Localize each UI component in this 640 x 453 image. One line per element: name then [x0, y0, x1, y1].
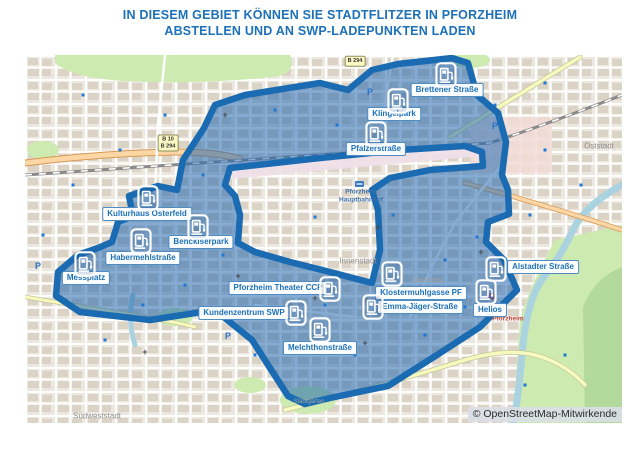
map-dot	[544, 82, 547, 85]
station-label: Alstadter Straße	[507, 260, 579, 274]
map-dot	[42, 234, 45, 237]
ev-charger-icon	[309, 317, 331, 343]
map-dot	[254, 354, 257, 357]
map-dot	[119, 149, 122, 152]
map-dot	[104, 339, 107, 342]
map-dot	[222, 254, 225, 257]
map-dot	[184, 284, 187, 287]
ev-charger-icon	[435, 62, 457, 88]
map-dot	[82, 94, 85, 97]
map-dot	[392, 214, 395, 217]
map-dot	[564, 354, 567, 357]
map-dot	[529, 214, 532, 217]
title-line-1: IN DIESEM GEBIET KÖNNEN SIE STADTFLITZER…	[0, 7, 640, 23]
ev-charger-icon	[74, 251, 96, 277]
station-label: Kundenzentrum SWP	[198, 306, 289, 320]
map-dot	[164, 114, 167, 117]
page-title: IN DIESEM GEBIET KÖNNEN SIE STADTFLITZER…	[0, 7, 640, 39]
station-label: Melchthonstraße	[283, 341, 357, 355]
ev-charger-icon	[485, 256, 507, 282]
map-dot	[494, 104, 497, 107]
ev-charger-icon	[130, 228, 152, 254]
station-label: Klostermuhlgasse PF	[375, 286, 467, 300]
map-dot	[142, 304, 145, 307]
map-dot	[444, 259, 447, 262]
map-dot	[202, 174, 205, 177]
map-dot	[274, 109, 277, 112]
map-dot	[324, 304, 327, 307]
ev-charger-icon	[187, 214, 209, 240]
base-map	[25, 55, 622, 423]
map-dot	[424, 334, 427, 337]
ev-charger-icon	[319, 276, 341, 302]
ev-charger-icon	[387, 88, 409, 114]
map-dot	[314, 216, 317, 219]
ev-charger-icon	[365, 121, 387, 147]
road-shield: B 10B 294	[158, 135, 179, 152]
map-dot	[476, 236, 479, 239]
station-label: Pforzheim Theater CCP	[229, 281, 328, 295]
station-label: Emma-Jäger-Straße	[377, 300, 463, 314]
osm-attribution: © OpenStreetMap-Mitwirkende	[468, 407, 622, 422]
map-canvas: © OpenStreetMap-Mitwirkende PforzheimHau…	[25, 55, 622, 423]
map-dot	[336, 124, 339, 127]
map-dot	[580, 184, 583, 187]
ev-charger-icon	[362, 294, 384, 320]
ev-charger-icon	[285, 300, 307, 326]
road-shield: B 294	[345, 56, 366, 67]
station-label: Helios	[473, 303, 507, 317]
map-dot	[544, 149, 547, 152]
ev-charger-icon	[381, 261, 403, 287]
map-dot	[524, 384, 527, 387]
title-line-2: ABSTELLEN UND AN SWP-LADEPUNKTEN LADEN	[0, 23, 640, 39]
map-dot	[72, 184, 75, 187]
ev-charger-icon	[137, 185, 159, 211]
map-dot	[464, 306, 467, 309]
ev-charger-icon	[475, 279, 497, 305]
